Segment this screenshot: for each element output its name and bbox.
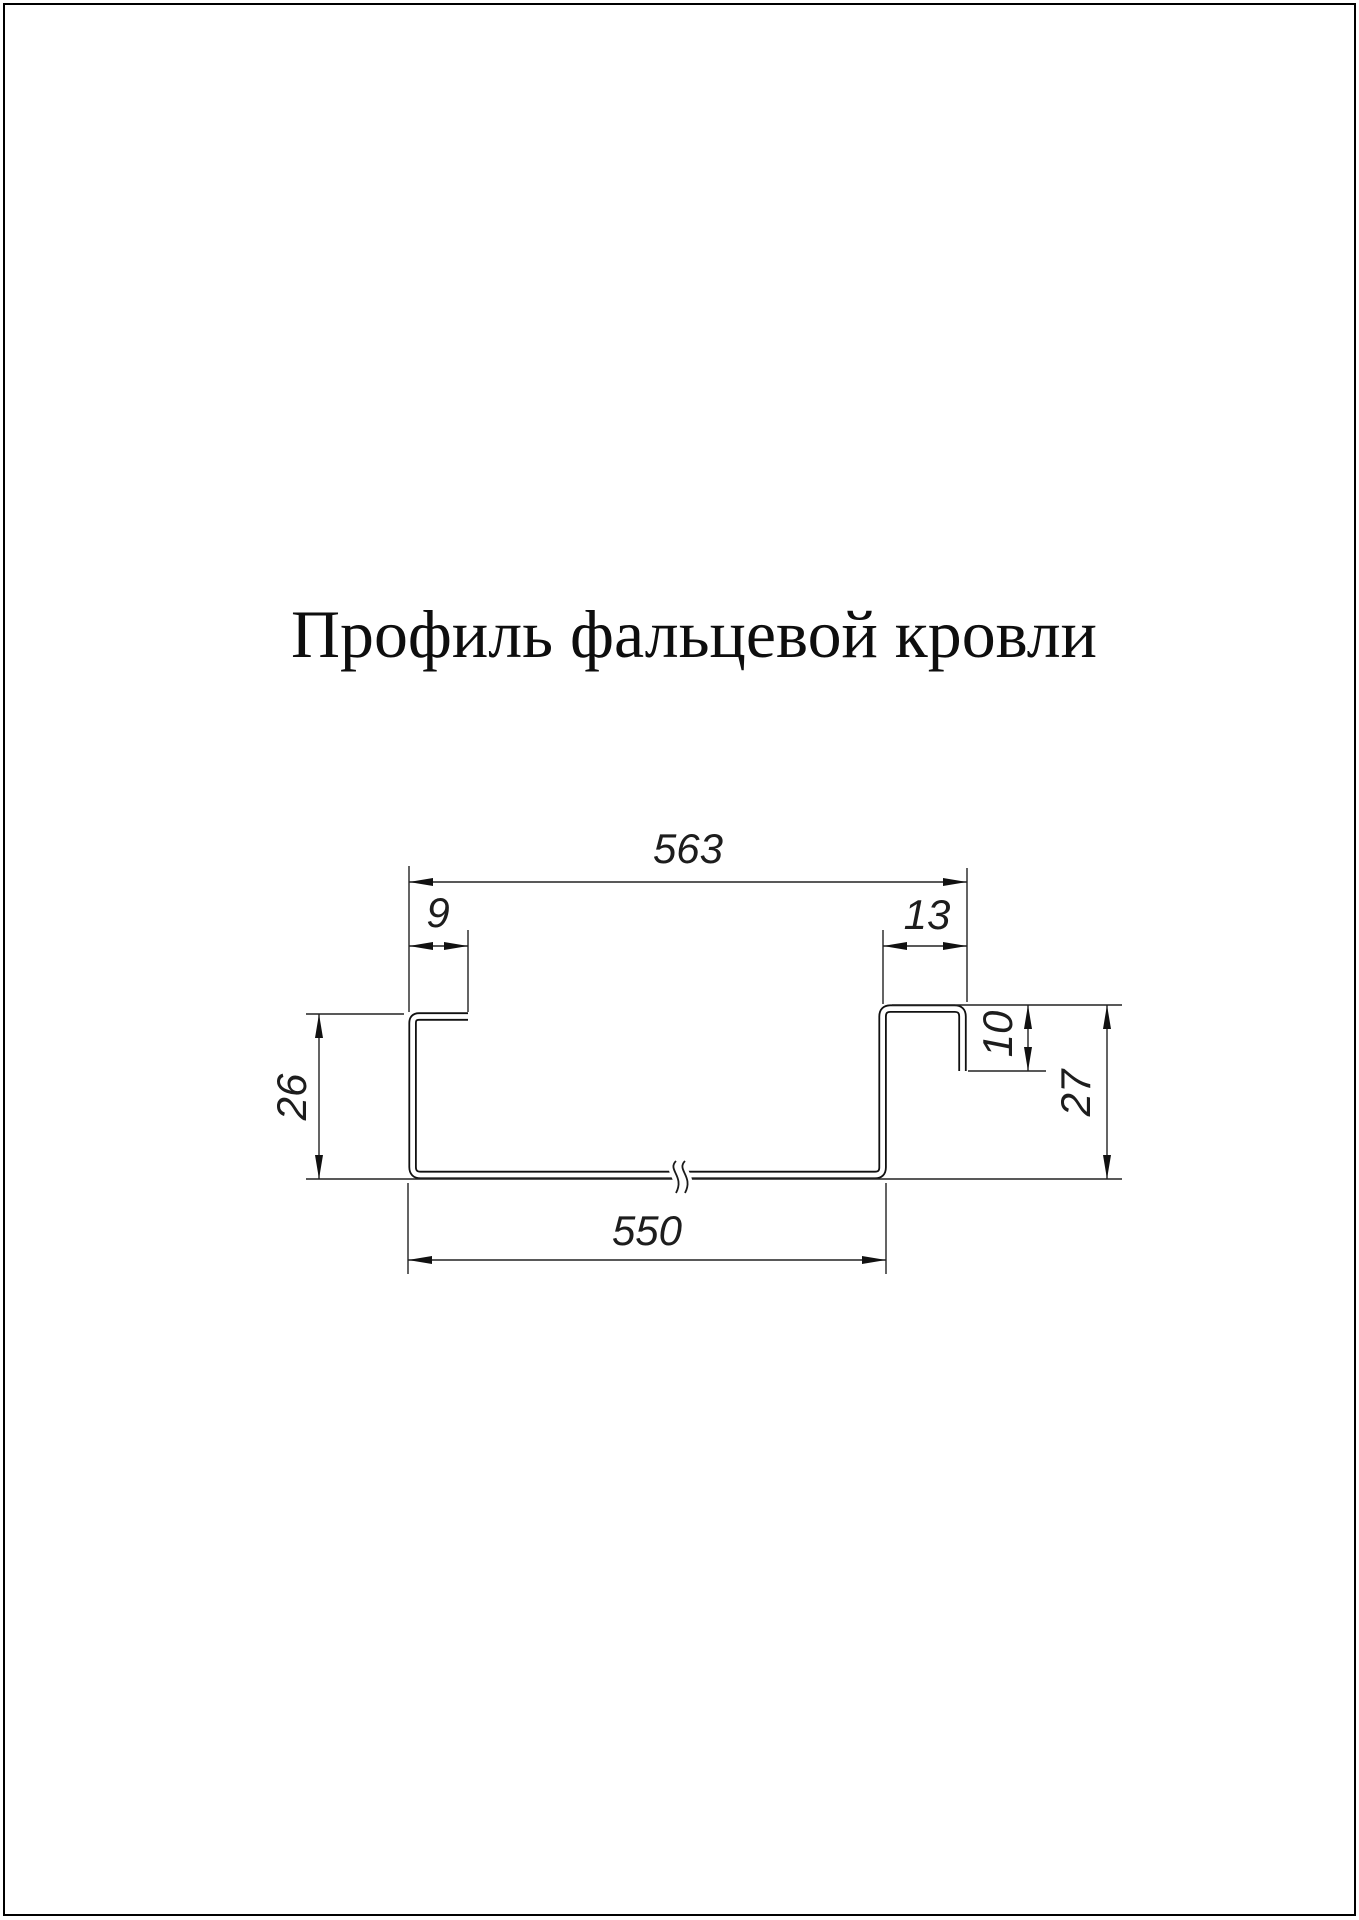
dimension-left-height: 26 bbox=[268, 1014, 323, 1179]
arrowhead-left-icon bbox=[883, 942, 907, 950]
dimension-bottom-width: 550 bbox=[408, 1207, 886, 1264]
dim-label-550: 550 bbox=[612, 1207, 683, 1254]
arrowhead-right-icon bbox=[444, 942, 468, 950]
dim-label-13: 13 bbox=[904, 891, 951, 938]
dim-label-563: 563 bbox=[653, 825, 723, 872]
dimension-right-seam-width: 13 bbox=[883, 891, 967, 950]
dim-label-9: 9 bbox=[426, 889, 449, 936]
page-title: Профиль фальцевой кровли bbox=[291, 596, 1097, 672]
arrowhead-down-icon bbox=[1024, 1047, 1032, 1071]
technical-drawing: Профиль фальцевой кровли 563 bbox=[0, 0, 1359, 1920]
dimension-right-step-height: 10 bbox=[974, 1005, 1032, 1071]
profile-sheet-outer bbox=[413, 1009, 963, 1175]
arrowhead-down-icon bbox=[1103, 1155, 1111, 1179]
page-border bbox=[4, 4, 1355, 1915]
dim-label-26: 26 bbox=[268, 1073, 315, 1121]
dimension-overall-top-width: 563 bbox=[409, 825, 967, 886]
arrowhead-up-icon bbox=[1024, 1005, 1032, 1029]
arrowhead-up-icon bbox=[315, 1014, 323, 1038]
dim-label-10: 10 bbox=[974, 1010, 1021, 1057]
arrowhead-right-icon bbox=[943, 878, 967, 886]
drawing-page: Профиль фальцевой кровли 563 bbox=[0, 0, 1359, 1920]
break-symbol-icon bbox=[673, 1161, 687, 1193]
arrowhead-left-icon bbox=[408, 1256, 432, 1264]
arrowhead-left-icon bbox=[409, 878, 433, 886]
dimension-left-lip: 9 bbox=[409, 889, 468, 950]
arrowhead-right-icon bbox=[862, 1256, 886, 1264]
profile-outline bbox=[413, 1009, 963, 1175]
dimension-right-height: 27 bbox=[1052, 1005, 1111, 1179]
arrowhead-up-icon bbox=[1103, 1005, 1111, 1029]
arrowhead-left-icon bbox=[409, 942, 433, 950]
arrowhead-down-icon bbox=[315, 1155, 323, 1179]
arrowhead-right-icon bbox=[943, 942, 967, 950]
dim-label-27: 27 bbox=[1052, 1068, 1099, 1117]
